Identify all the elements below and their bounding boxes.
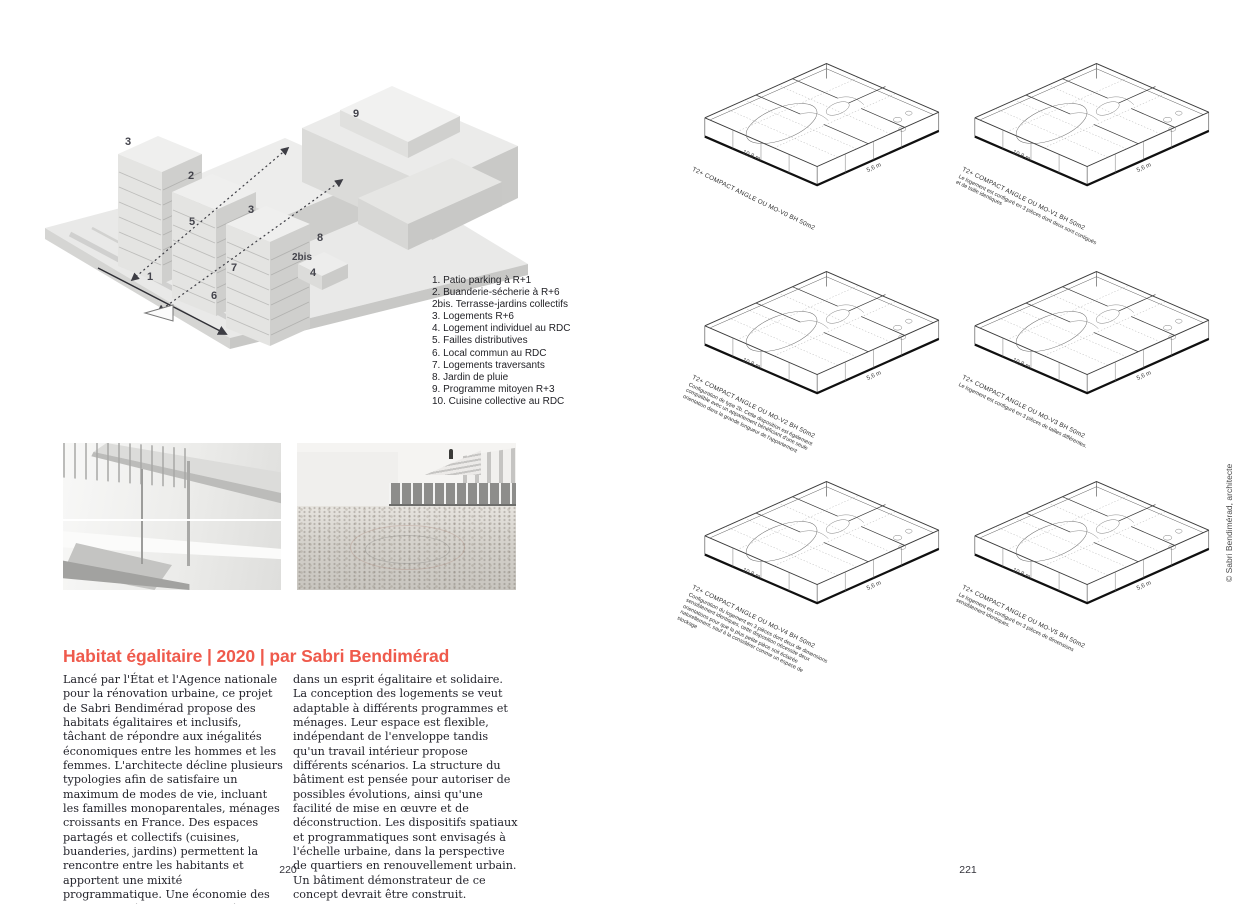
body-text-column-2: dans un esprit égalitaire et solidaire. … xyxy=(293,673,519,903)
legend-item: 7. Logements traversants xyxy=(432,360,582,372)
massing-label: 8 xyxy=(317,232,323,244)
legend-item: 8. Jardin de pluie xyxy=(432,372,582,384)
legend-item: 9. Programme mitoyen R+3 xyxy=(432,384,582,396)
massing-label: 1 xyxy=(147,271,153,283)
legend-item: 2bis. Terrasse-jardins collectifs xyxy=(432,299,582,311)
article-title: Habitat égalitaire | 2020 | par Sabri Be… xyxy=(63,646,533,667)
photo-credit: © Sabri Bendimérad, architecte xyxy=(1224,464,1234,582)
legend-item: 2. Buanderie-sécherie à R+6 xyxy=(432,287,582,299)
plan-diagram-v0: 10,8 m 5,6 m T2+ COMPACT ANGLE OU MO-V0 … xyxy=(660,48,960,254)
plan-diagram-v2: 10,8 m 5,6 m T2+ COMPACT ANGLE OU MO-V2 … xyxy=(660,256,960,462)
page-number-left: 220 xyxy=(266,864,310,876)
page-number-right: 221 xyxy=(946,864,990,876)
massing-label: 2bis xyxy=(292,252,312,263)
plan-diagram-v5: 10,8 m 5,6 m T2+ COMPACT ANGLE OU MO-V5 … xyxy=(930,466,1230,672)
legend-item: 5. Failles distributives xyxy=(432,335,582,347)
legend-item: 6. Local commun au RDC xyxy=(432,348,582,360)
dimension-long: 10,8 m xyxy=(1011,567,1031,581)
dimension-long: 10,8 m xyxy=(741,357,761,371)
dimension-long: 10,8 m xyxy=(741,149,761,163)
drawing-legend: 1. Patio parking à R+1 2. Buanderie-séch… xyxy=(432,275,582,408)
legend-item: 3. Logements R+6 xyxy=(432,311,582,323)
plan-diagram-v3: 10,8 m 5,6 m T2+ COMPACT ANGLE OU MO-V3 … xyxy=(930,256,1230,462)
massing-label: 2 xyxy=(188,170,194,182)
dimension-long: 10,8 m xyxy=(1011,357,1031,371)
body-text-column-1: Lancé par l'État et l'Agence nationale p… xyxy=(63,673,283,904)
person-figure xyxy=(449,449,453,459)
plan-diagram-v1: 10,8 m 5,6 m T2+ COMPACT ANGLE OU MO-V1 … xyxy=(930,48,1230,254)
book-spread: 3 2 9 3 5 8 2bis 7 4 1 6 1. Patio parkin… xyxy=(0,0,1259,904)
plan-diagram-v4: 10,8 m 5,6 m T2+ COMPACT ANGLE OU MO-V4 … xyxy=(660,466,960,672)
render-photo-interior xyxy=(63,443,281,590)
massing-label: 3 xyxy=(125,136,131,148)
dimension-long: 10,8 m xyxy=(1011,149,1031,163)
dimension-long: 10,8 m xyxy=(741,567,761,581)
legend-item: 4. Logement individuel au RDC xyxy=(432,323,582,335)
massing-label: 7 xyxy=(231,262,237,274)
render-photo-courtyard xyxy=(297,443,516,590)
legend-item: 1. Patio parking à R+1 xyxy=(432,275,582,287)
legend-item: 10. Cuisine collective au RDC xyxy=(432,396,582,408)
massing-label: 9 xyxy=(353,108,359,120)
north-triangle-marker xyxy=(145,305,173,321)
massing-label: 5 xyxy=(189,216,195,228)
massing-label: 3 xyxy=(248,204,254,216)
massing-label: 6 xyxy=(211,290,217,302)
massing-label: 4 xyxy=(310,267,316,279)
